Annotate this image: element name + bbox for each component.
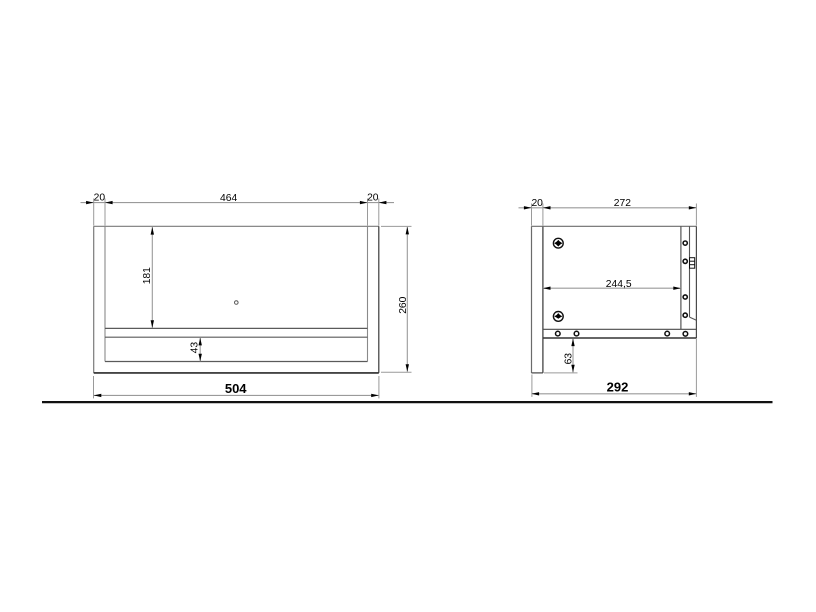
svg-text:464: 464 — [220, 193, 237, 204]
svg-text:272: 272 — [614, 198, 631, 209]
svg-text:20: 20 — [94, 192, 106, 203]
svg-text:292: 292 — [607, 379, 629, 394]
svg-text:63: 63 — [563, 353, 574, 365]
svg-text:20: 20 — [367, 192, 379, 203]
svg-text:260: 260 — [398, 296, 409, 313]
svg-text:43: 43 — [190, 342, 201, 354]
svg-text:181: 181 — [142, 267, 153, 284]
svg-text:504: 504 — [225, 381, 247, 396]
svg-text:20: 20 — [531, 198, 543, 209]
svg-text:244,5: 244,5 — [606, 279, 632, 290]
